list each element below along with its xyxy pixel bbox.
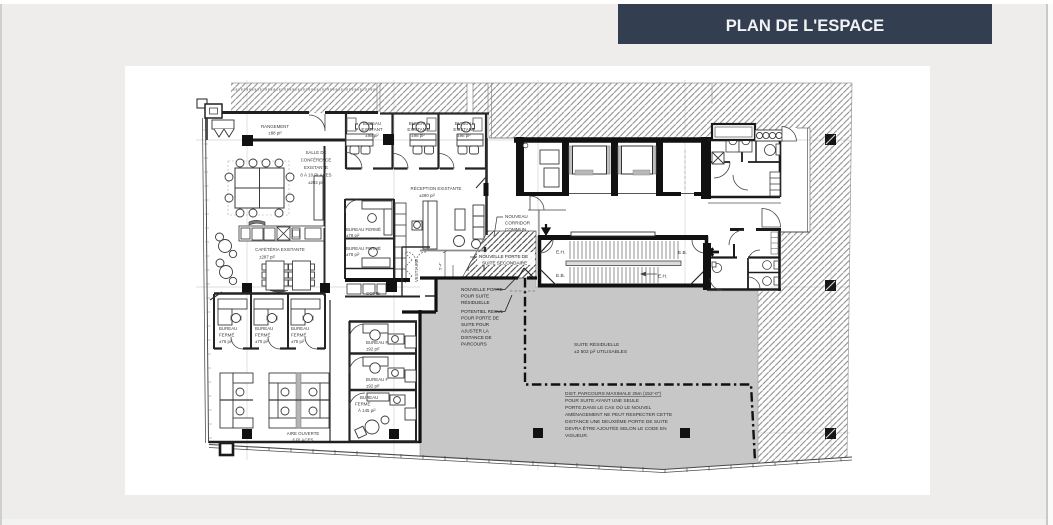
svg-text:EXISTANTE: EXISTANTE: [304, 165, 328, 170]
svg-text:±287 pi²: ±287 pi²: [259, 255, 275, 260]
svg-text:BUREAU FERMÉ: BUREAU FERMÉ: [346, 246, 381, 251]
svg-text:DIST. PARCOURS MAXIMALE 25m (1: DIST. PARCOURS MAXIMALE 25m (152'-0"): [565, 391, 661, 397]
svg-text:EXISTANT: EXISTANT: [453, 127, 474, 132]
svg-text:POUR SUITE AYANT UNE SEULE: POUR SUITE AYANT UNE SEULE: [565, 398, 639, 404]
svg-text:PARCOURS: PARCOURS: [461, 342, 487, 347]
svg-text:±88 pi²: ±88 pi²: [268, 131, 282, 136]
svg-text:±92 pi²: ±92 pi²: [366, 347, 380, 352]
svg-text:À 145 pi²: À 145 pi²: [358, 408, 376, 413]
svg-text:EXISTANT: EXISTANT: [407, 127, 428, 132]
svg-text:FERMÉ: FERMÉ: [255, 333, 270, 338]
svg-text:6 PLACES: 6 PLACES: [293, 438, 314, 443]
svg-text:FERMÉ: FERMÉ: [219, 333, 234, 338]
svg-text:VESTIAIRE: VESTIAIRE: [414, 259, 419, 282]
svg-text:BUREAU F: BUREAU F: [366, 340, 389, 345]
svg-text:BUREAU: BUREAU: [360, 395, 378, 400]
svg-text:FERMÉ: FERMÉ: [355, 402, 370, 407]
svg-text:FERMÉ: FERMÉ: [291, 333, 306, 338]
svg-text:5'-4": 5'-4": [439, 262, 443, 270]
svg-text:SUITE RÉSIDUELLE: SUITE RÉSIDUELLE: [574, 341, 619, 348]
svg-text:BUREAU: BUREAU: [291, 326, 309, 331]
svg-text:BUREAU: BUREAU: [219, 326, 237, 331]
svg-text:±92 pi²: ±92 pi²: [366, 384, 380, 389]
svg-text:±98 pi²: ±98 pi²: [365, 133, 379, 138]
svg-text:POUR PORTE DE: POUR PORTE DE: [461, 316, 499, 321]
svg-text:NOUVEAU: NOUVEAU: [505, 214, 528, 219]
svg-text:E.H.: E.H.: [658, 274, 667, 280]
svg-text:CORRIDOR: CORRIDOR: [505, 221, 531, 226]
svg-text:±78 pi²: ±78 pi²: [346, 233, 360, 238]
svg-text:BUREAU: BUREAU: [255, 326, 273, 331]
svg-text:BUREAU: BUREAU: [455, 121, 473, 126]
svg-text:DISTANCE DE: DISTANCE DE: [461, 335, 492, 340]
svg-text:COMMUN: COMMUN: [505, 227, 526, 232]
svg-text:BUREAU: BUREAU: [363, 121, 381, 126]
svg-text:E.B.: E.B.: [678, 250, 687, 256]
svg-text:AIRE OUVERTE: AIRE OUVERTE: [287, 431, 320, 436]
svg-text:E.B.: E.B.: [556, 273, 565, 279]
svg-text:EXISTANT: EXISTANT: [361, 127, 382, 132]
svg-text:DISTANCE UNE DEUXIÈME PORTE DE: DISTANCE UNE DEUXIÈME PORTE DE SUITE: [565, 418, 668, 425]
svg-text:NOUVELLE PORTE DE: NOUVELLE PORTE DE: [479, 254, 528, 259]
svg-text:±290 pi²: ±290 pi²: [419, 193, 435, 198]
svg-text:±75 pi²: ±75 pi²: [291, 339, 305, 344]
svg-text:CAFÉTÉRIA EXISTANTE: CAFÉTÉRIA EXISTANTE: [255, 247, 305, 252]
svg-text:8 À 10 PLACES: 8 À 10 PLACES: [300, 173, 331, 178]
svg-text:RANGEMENT: RANGEMENT: [261, 124, 289, 129]
svg-text:±78 pi²: ±78 pi²: [346, 252, 360, 257]
svg-text:COPIE: COPIE: [366, 291, 380, 296]
svg-text:PORTE,DANS LE CAS OÙ LE NOUVEL: PORTE,DANS LE CAS OÙ LE NOUVEL: [565, 404, 652, 411]
svg-text:±75 pi²: ±75 pi²: [255, 339, 269, 344]
svg-text:CONFÉRENCE: CONFÉRENCE: [301, 158, 332, 163]
svg-text:SUITE POUR: SUITE POUR: [461, 322, 490, 327]
svg-text:PLAN DE L'ESPACE: PLAN DE L'ESPACE: [726, 16, 885, 35]
svg-text:BUREAU: BUREAU: [409, 121, 427, 126]
svg-text:BUREAU FERMÉ: BUREAU FERMÉ: [346, 227, 381, 232]
svg-text:±2 502 pi² UTILISABLES: ±2 502 pi² UTILISABLES: [574, 349, 627, 355]
svg-text:±202 pi²: ±202 pi²: [308, 180, 324, 185]
svg-text:RÉSIDUELLE: RÉSIDUELLE: [461, 299, 490, 305]
svg-text:AJUSTER LA: AJUSTER LA: [461, 329, 490, 334]
svg-text:RÉCEPTION EXISTANTE: RÉCEPTION EXISTANTE: [411, 186, 462, 191]
svg-text:±98 pi²: ±98 pi²: [411, 133, 425, 138]
svg-text:±98 pi²: ±98 pi²: [457, 133, 471, 138]
svg-text:BUREAU F: BUREAU F: [366, 377, 389, 382]
svg-text:±76 pi²: ±76 pi²: [219, 339, 233, 344]
svg-text:AMÉNAGEMENT NE PEUT RESPECTER: AMÉNAGEMENT NE PEUT RESPECTER CETTE: [565, 411, 672, 418]
svg-text:SALLE DE: SALLE DE: [306, 150, 327, 155]
svg-text:SUITE SECONDAIRE: SUITE SECONDAIRE: [482, 261, 527, 266]
svg-text:VIGUEUR.: VIGUEUR.: [565, 433, 588, 439]
svg-text:POUR SUITE: POUR SUITE: [461, 294, 489, 299]
svg-text:E.H.: E.H.: [556, 250, 565, 256]
